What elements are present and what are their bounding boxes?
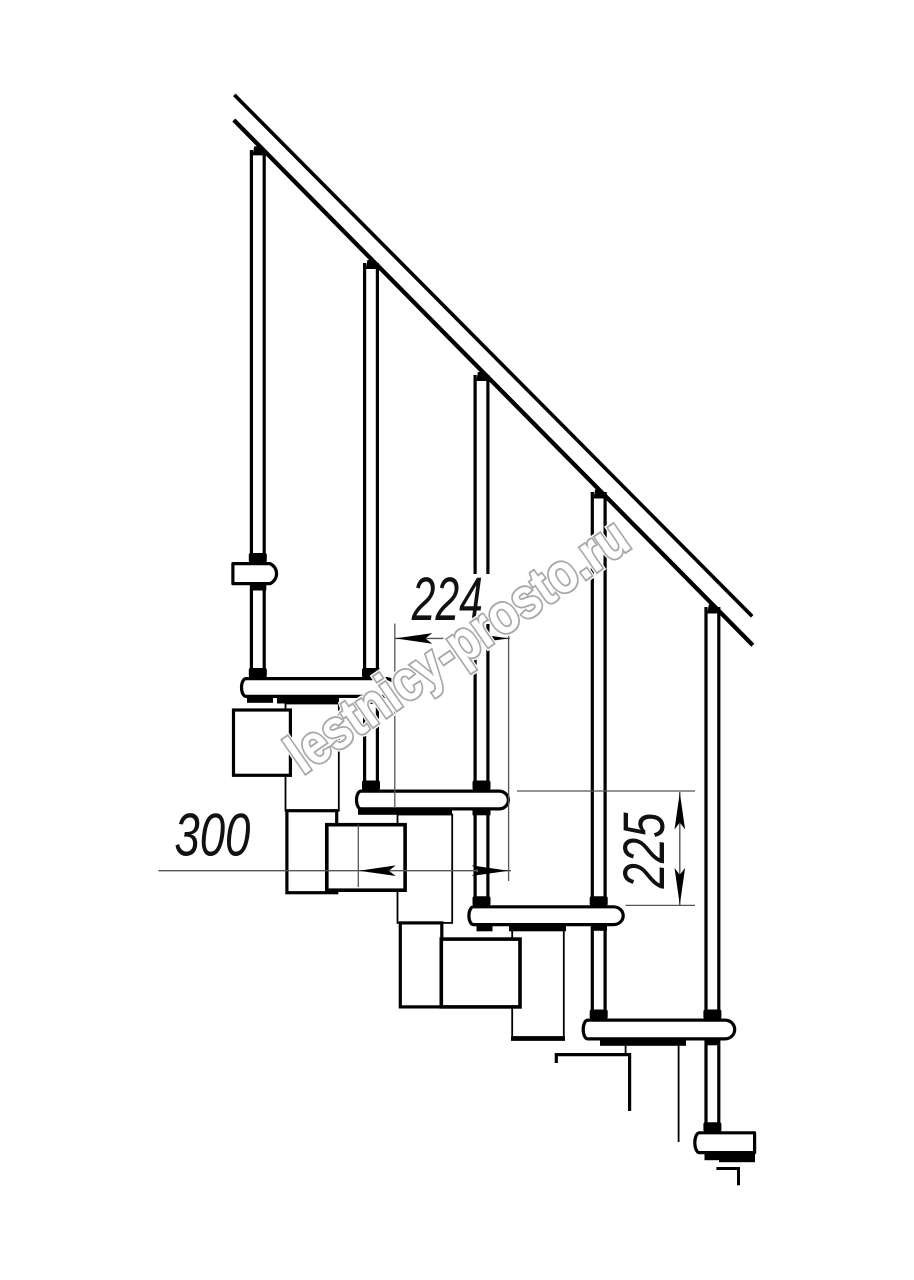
svg-text:225: 225: [612, 812, 677, 889]
svg-text:300: 300: [174, 802, 250, 869]
